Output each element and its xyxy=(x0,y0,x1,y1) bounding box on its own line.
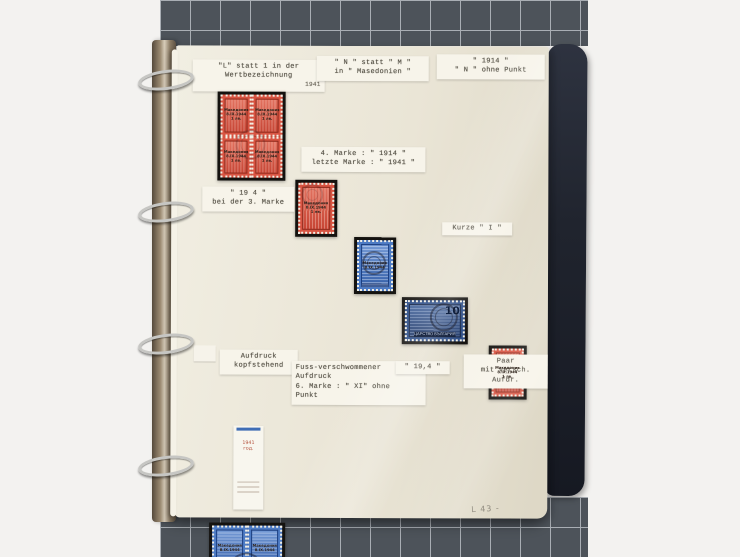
overprint-text: Македония 8.IX.1944 1 лв. xyxy=(224,109,248,122)
stamp-navy-10-single: 10ЦАРСТВО БЪЛГАРИЯ xyxy=(402,297,468,344)
stamp-block-red-of-4: Македония 8.IX.1944 1 лв.Македония 8.IX.… xyxy=(217,91,285,180)
tab-inscription: 1941 год. xyxy=(238,440,259,451)
stamp-caption: ЦАРСТВО БЪЛГАРИЯ xyxy=(414,332,456,337)
label-line: bei der 3. Marke xyxy=(206,199,290,209)
album-page: "L" statt 1 in der Wertbezeichnung 1941 … xyxy=(175,45,549,518)
small-blank-tag xyxy=(194,345,216,361)
cutting-mat-top xyxy=(160,0,588,46)
stamp: Македония 8.IX.1944 xyxy=(247,526,282,557)
typed-label-mid-center: 4. Marke : " 1914 " letzte Marke : " 194… xyxy=(301,147,425,172)
photo-scene: "L" statt 1 in der Wertbezeichnung 1941 … xyxy=(0,0,740,557)
typed-label-top-left: "L" statt 1 in der Wertbezeichnung 1941 xyxy=(193,59,325,91)
typed-label-bottom-left: Aufdruck kopfstehend xyxy=(220,350,298,375)
overprint-text: Македония 8.IX.1944 1 лв. xyxy=(224,150,248,163)
typed-label-year: " 19,4 " xyxy=(396,361,450,375)
overprint-text: Македония 8.IX.1944 xyxy=(363,261,387,270)
binder-cover xyxy=(544,44,587,496)
overprint-text: Македония 8.IX.1944 xyxy=(217,544,241,553)
label-line: letzte Marke : " 1941 " xyxy=(305,159,421,169)
overprint-text: Македония 8.IX.1944 xyxy=(252,544,276,553)
stamp: Македония 8.IX.1944 xyxy=(357,240,393,291)
sheet-margin-tab: 1941 год. xyxy=(233,426,263,510)
stamp-blue-single: Македония 8.IX.1944 xyxy=(354,237,396,294)
stamp: Македония 8.IX.1944 1 лв. xyxy=(251,136,282,178)
overprint-text: Македония 8.IX.1944 1 лв. xyxy=(495,366,519,379)
stamp: Македония 8.IX.1944 1 лв. xyxy=(298,183,334,234)
label-line: Punkt xyxy=(296,392,422,402)
stamp-red-single-a: Македония 8.IX.1944 1 лв. xyxy=(295,180,337,237)
label-line: " 19,4 " xyxy=(399,363,447,373)
stamp: Македония 8.IX.1944 1 лв. xyxy=(221,95,252,137)
overprint-text: Македония 8.IX.1944 1 лв. xyxy=(255,109,279,122)
overprint-text: Македония 8.IX.1944 1 лв. xyxy=(255,150,279,163)
pencil-note: L 43 - xyxy=(471,504,500,514)
value-overprint: 10 xyxy=(445,304,460,317)
overprint-text: Македония 8.IX.1944 1 лв. xyxy=(304,202,328,215)
label-note: 1941 xyxy=(197,80,321,89)
label-line: Kurze " I " xyxy=(445,224,509,234)
stamp: 10ЦАРСТВО БЪЛГАРИЯ xyxy=(405,300,465,341)
typed-label-top-middle: " N " statt " M " in " Masedonien " xyxy=(317,56,429,81)
stamp-block-blue-of-4: Македония 8.IX.1944Македония 8.IX.1944Ма… xyxy=(209,522,285,557)
typed-label-kurze: Kurze " I " xyxy=(442,222,512,236)
label-line: in " Masedonien " xyxy=(321,68,425,78)
stamp: Македония 8.IX.1944 1 лв. xyxy=(252,95,283,137)
label-line: Aufdruck xyxy=(296,373,422,383)
label-line: " N " ohne Punkt xyxy=(441,67,541,77)
label-line: kopfstehend xyxy=(224,362,294,372)
typed-label-top-right: " 1914 " " N " ohne Punkt xyxy=(437,54,545,79)
typed-label-mid-left: " 19 4 " bei der 3. Marke xyxy=(202,186,294,211)
stamp: Македония 8.IX.1944 1 лв. xyxy=(220,136,251,178)
stamp: Македония 8.IX.1944 xyxy=(212,525,247,557)
tab-blue-bar xyxy=(236,428,260,431)
